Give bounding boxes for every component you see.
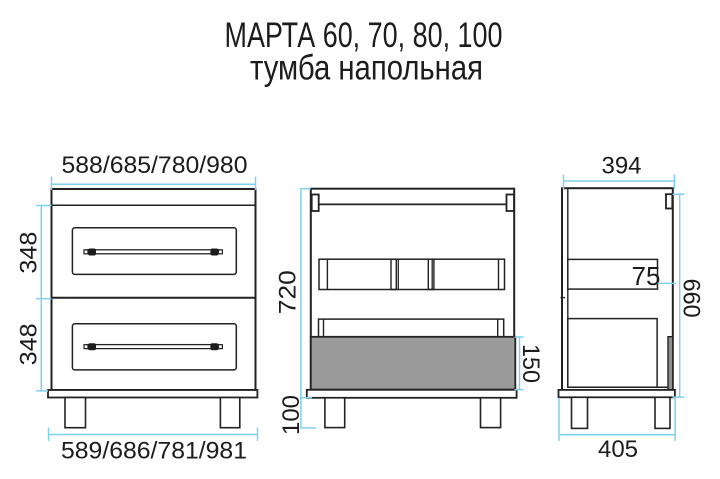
svg-text:100: 100 (278, 395, 305, 435)
svg-text:348: 348 (15, 232, 42, 274)
svg-text:589/686/781/981: 589/686/781/981 (61, 438, 247, 465)
svg-text:405: 405 (598, 436, 638, 463)
svg-text:тумба напольная: тумба напольная (250, 49, 483, 88)
svg-text:348: 348 (15, 323, 42, 365)
svg-text:150: 150 (517, 344, 544, 383)
svg-text:588/685/780/980: 588/685/780/980 (62, 152, 248, 179)
svg-text:720: 720 (275, 270, 302, 314)
svg-text:75: 75 (632, 261, 661, 291)
svg-text:394: 394 (601, 153, 641, 180)
svg-text:660: 660 (678, 279, 705, 318)
